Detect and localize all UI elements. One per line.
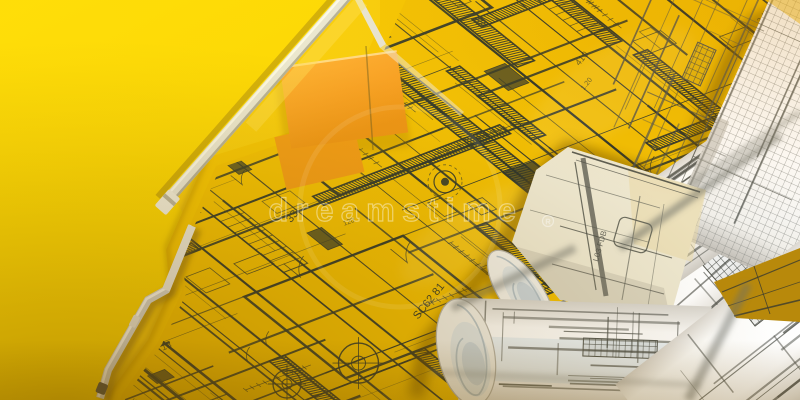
svg-text:R: R (545, 219, 550, 226)
svg-text:dreamstime: dreamstime (269, 192, 524, 228)
